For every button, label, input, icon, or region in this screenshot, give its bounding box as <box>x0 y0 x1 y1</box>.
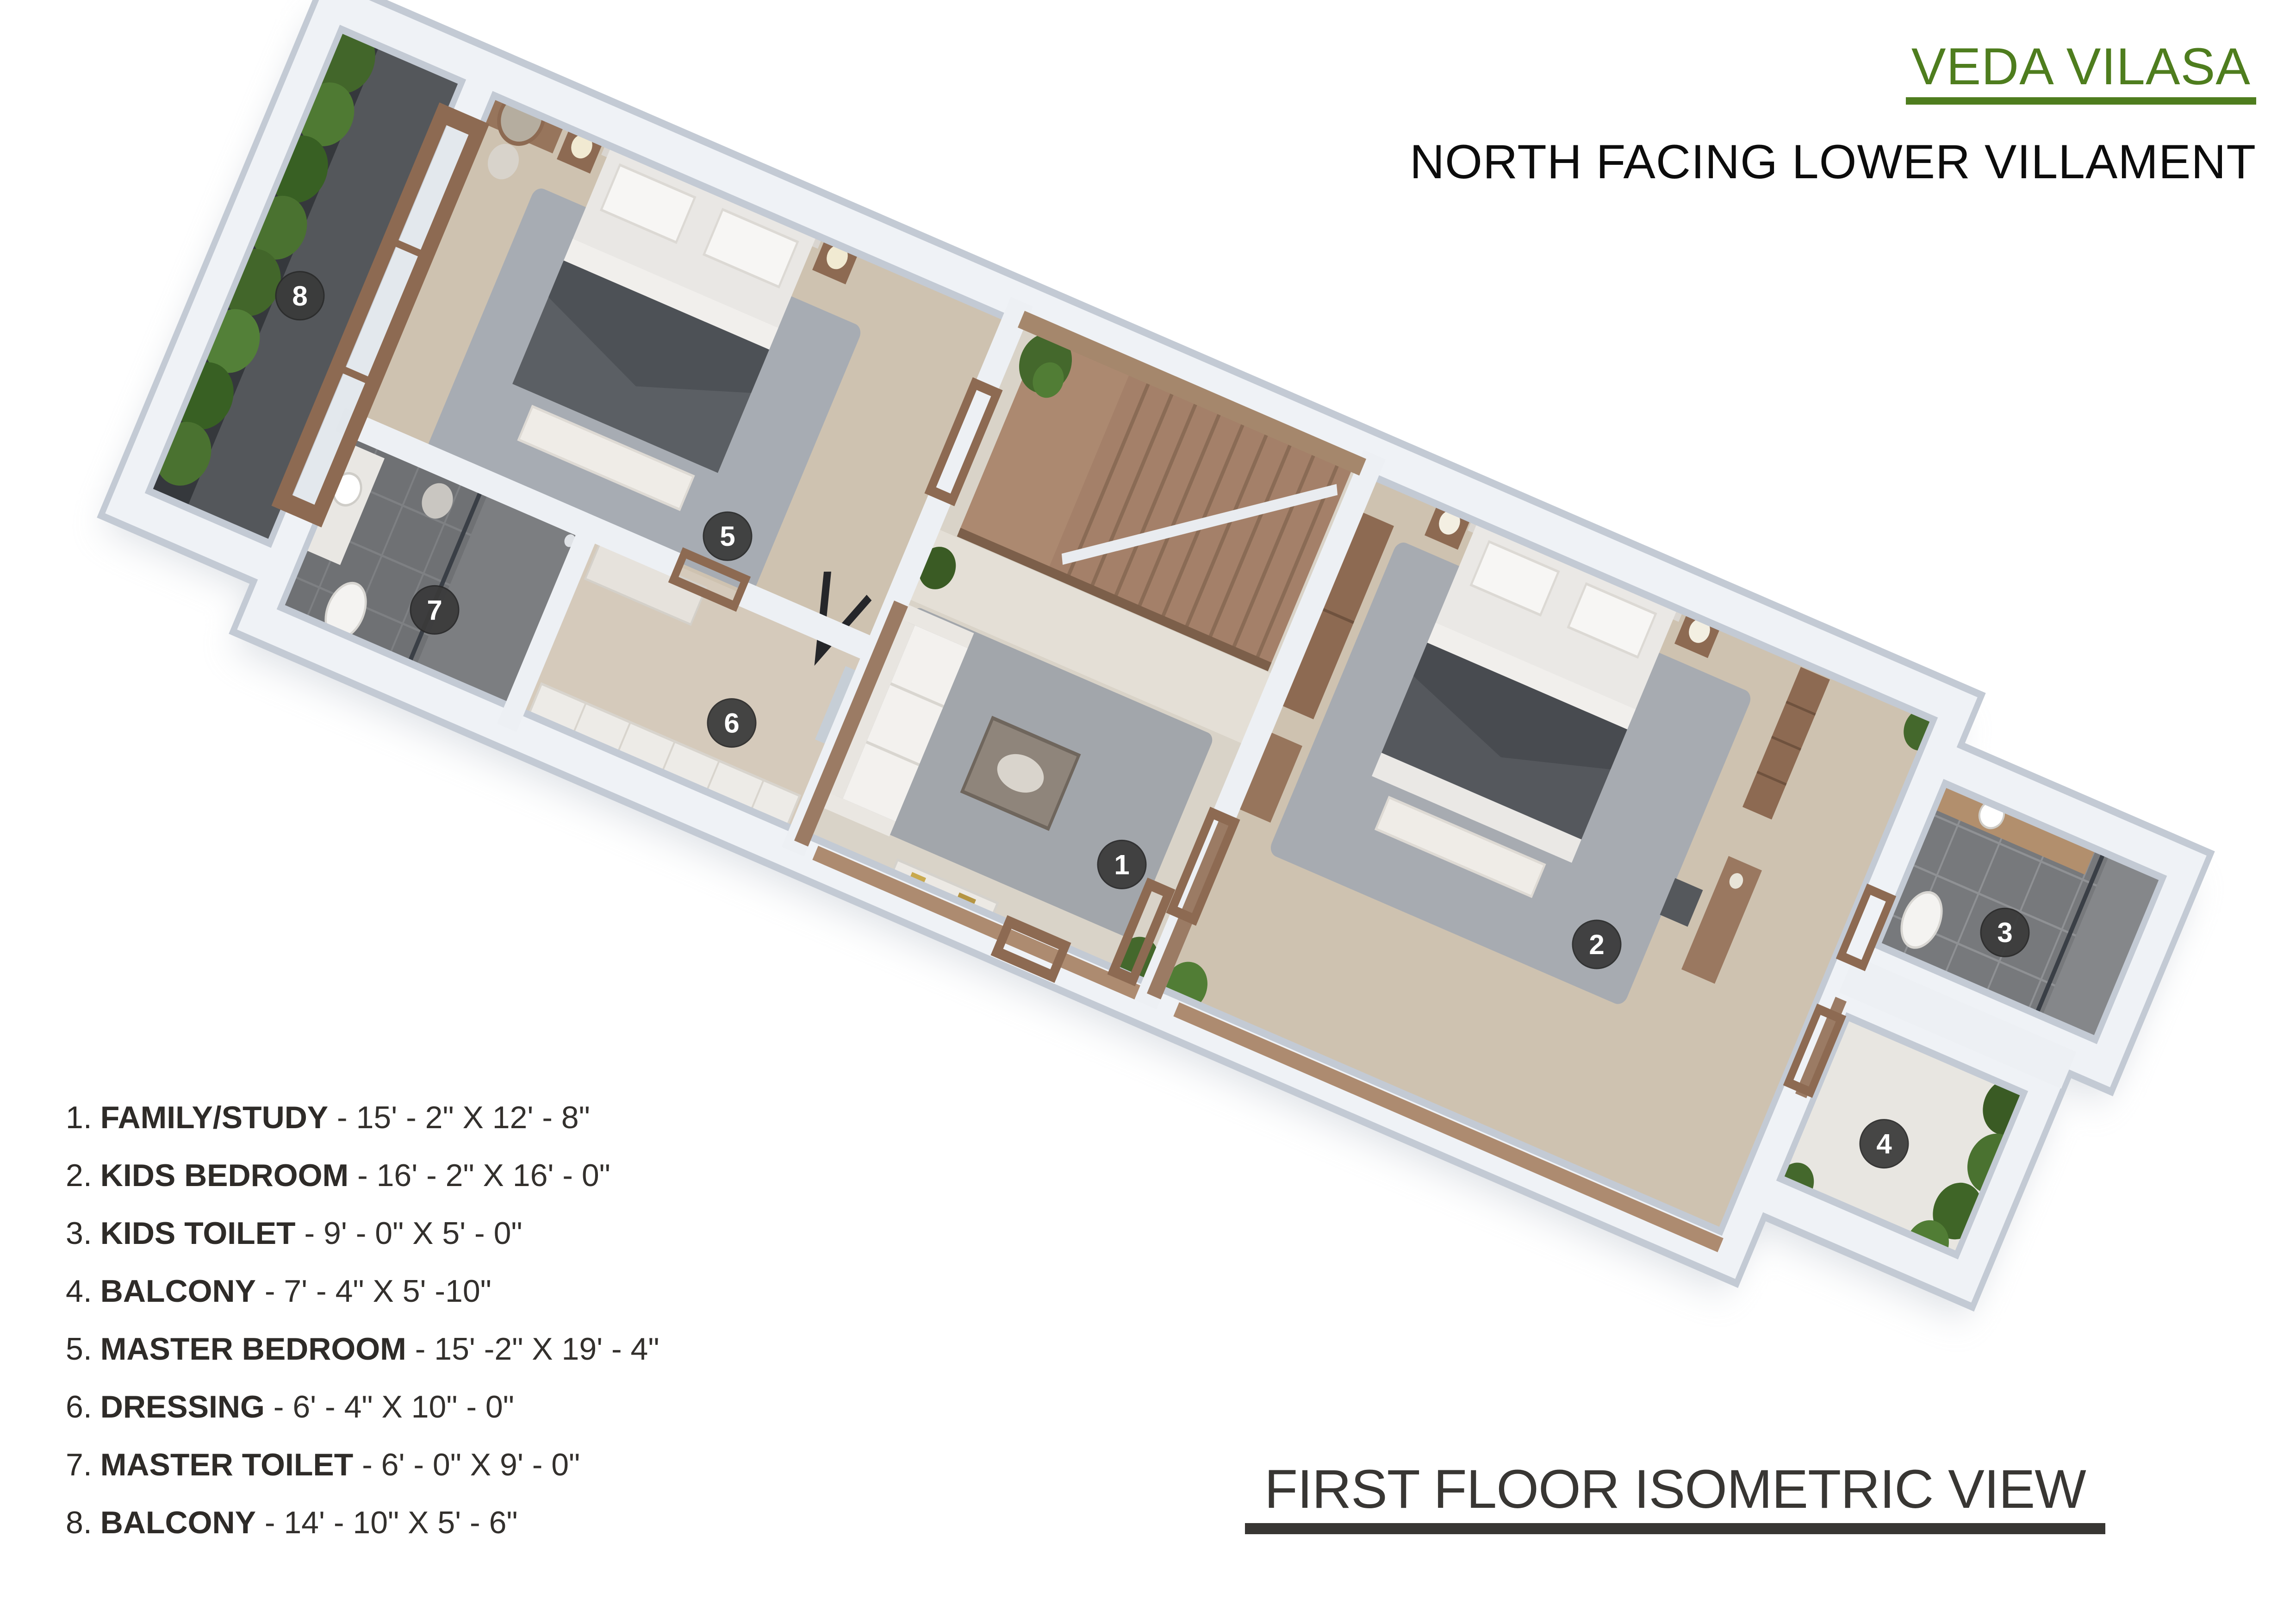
room-marker-label-2: 2 <box>1589 929 1604 960</box>
legend-room-dims: - 15' - 2" X 12' - 8" <box>328 1100 590 1135</box>
legend-room-name: KIDS TOILET <box>100 1216 296 1251</box>
legend-room-dims: - 16' - 2" X 16' - 0" <box>348 1158 610 1193</box>
legend-room-name: BALCONY <box>100 1274 256 1309</box>
legend-item-5: 5.MASTER BEDROOM - 15' -2" X 19' - 4" <box>66 1320 660 1378</box>
room-marker-label-4: 4 <box>1876 1129 1892 1160</box>
legend-item-1: 1.FAMILY/STUDY - 15' - 2" X 12' - 8" <box>66 1089 660 1147</box>
room-marker-label-1: 1 <box>1114 849 1129 880</box>
legend-room-dims: - 14' - 10" X 5' - 6" <box>256 1505 518 1540</box>
legend-item-2: 2.KIDS BEDROOM - 16' - 2" X 16' - 0" <box>66 1147 660 1205</box>
legend-room-name: DRESSING <box>100 1389 265 1424</box>
project-title: VEDA VILASA <box>1906 41 2256 105</box>
legend-room-name: BALCONY <box>100 1505 256 1540</box>
legend-number: 3. <box>66 1216 92 1251</box>
legend-room-dims: - 6' - 4" X 10" - 0" <box>265 1389 514 1424</box>
room-marker-label-5: 5 <box>720 521 735 552</box>
legend-room-name: MASTER TOILET <box>100 1447 354 1482</box>
legend-item-7: 7.MASTER TOILET - 6' - 0" X 9' - 0" <box>66 1436 660 1494</box>
plan-subtitle: NORTH FACING LOWER VILLAMENT <box>1410 138 2256 186</box>
legend-number: 4. <box>66 1274 92 1309</box>
legend-number: 6. <box>66 1389 92 1424</box>
legend-room-name: KIDS BEDROOM <box>100 1158 348 1193</box>
room-marker-label-6: 6 <box>724 708 739 739</box>
legend-number: 7. <box>66 1447 92 1482</box>
legend-number: 1. <box>66 1100 92 1135</box>
legend-room-dims: - 7' - 4" X 5' -10" <box>256 1274 492 1309</box>
legend-room-dims: - 9' - 0" X 5' - 0" <box>296 1216 523 1251</box>
legend-number: 2. <box>66 1158 92 1193</box>
legend-item-6: 6.DRESSING - 6' - 4" X 10" - 0" <box>66 1378 660 1436</box>
legend-item-3: 3.KIDS TOILET - 9' - 0" X 5' - 0" <box>66 1205 660 1262</box>
room-marker-label-8: 8 <box>292 281 307 312</box>
room-marker-label-7: 7 <box>427 594 442 625</box>
legend-room-dims: - 15' -2" X 19' - 4" <box>406 1331 660 1367</box>
legend-number: 8. <box>66 1505 92 1540</box>
legend-room-dims: - 6' - 0" X 9' - 0" <box>353 1447 580 1482</box>
legend-number: 5. <box>66 1331 92 1367</box>
view-caption: FIRST FLOOR ISOMETRIC VIEW <box>1245 1462 2105 1534</box>
page: 12345678 VEDA VILASA NORTH FACING LOWER … <box>0 0 2296 1624</box>
legend-room-name: FAMILY/STUDY <box>100 1100 328 1135</box>
legend-room-name: MASTER BEDROOM <box>100 1331 406 1367</box>
room-marker-label-3: 3 <box>1997 917 2012 948</box>
room-legend: 1.FAMILY/STUDY - 15' - 2" X 12' - 8"2.KI… <box>66 1089 660 1552</box>
legend-item-8: 8.BALCONY - 14' - 10" X 5' - 6" <box>66 1494 660 1552</box>
header: VEDA VILASA NORTH FACING LOWER VILLAMENT <box>1410 41 2256 186</box>
legend-item-4: 4.BALCONY - 7' - 4" X 5' -10" <box>66 1262 660 1320</box>
